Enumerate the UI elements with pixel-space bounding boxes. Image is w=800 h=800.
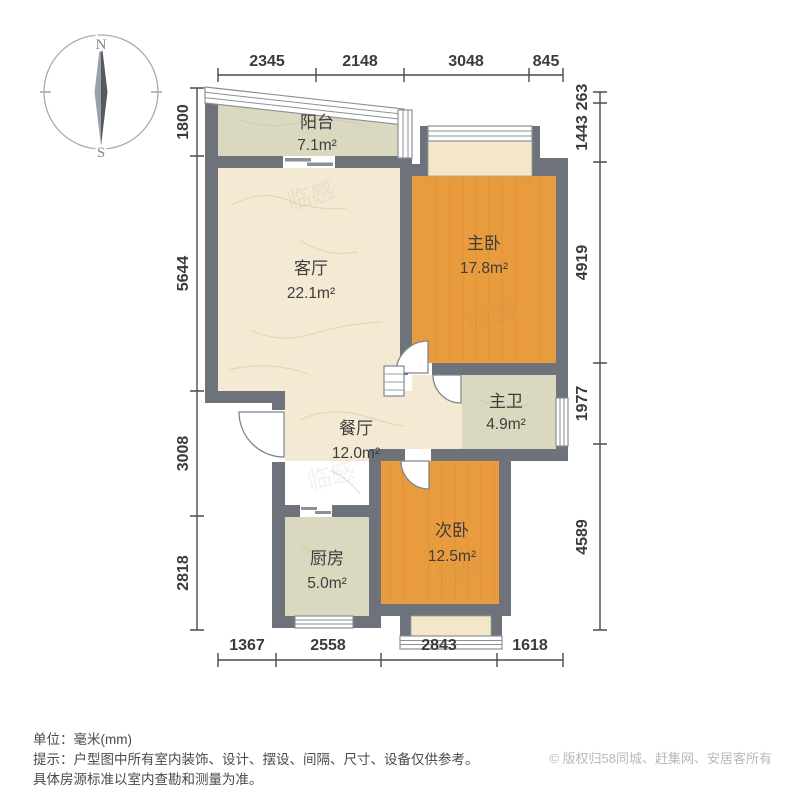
master-bay-sill <box>428 141 532 176</box>
balcony-area: 7.1m² <box>297 137 337 154</box>
dim-right-3: 4919 <box>574 245 591 281</box>
wall-second-bedroom-bottom <box>381 604 511 616</box>
kitchen-slider-leaf1 <box>301 507 317 510</box>
dim-bottom-4: 1618 <box>512 637 548 654</box>
dim-bottom-3: 2843 <box>421 637 457 654</box>
kitchen-slider-leaf2 <box>315 511 331 514</box>
floorplan-canvas: N S <box>0 0 800 715</box>
dim-right-2: 1443 <box>574 115 591 151</box>
dim-bottom-1: 1367 <box>229 637 265 654</box>
dim-right-1: 263 <box>574 84 591 111</box>
wall-bay-stub-left <box>400 616 411 638</box>
dim-right-5: 4589 <box>574 519 591 555</box>
dim-left-1: 1800 <box>175 104 192 140</box>
floorplan-page: N S <box>0 0 800 800</box>
second-bedroom-door-gap <box>405 449 431 461</box>
dim-top-3: 3048 <box>448 53 484 70</box>
dim-bottom-2: 2558 <box>310 637 346 654</box>
tip-note-line1: 提示：户型图中所有室内装饰、设计、摆设、间隔、尺寸、设备仅供参考。 <box>33 750 479 770</box>
master-bath-floor <box>462 375 556 451</box>
wall-master-bay-stub-left <box>420 126 428 176</box>
wall-bath-second-bedroom <box>369 449 568 461</box>
dim-right-4: 1977 <box>574 386 591 422</box>
wall-bay-stub-right <box>491 616 502 638</box>
compass-south-label: S <box>97 145 105 161</box>
wall-living-master <box>400 156 412 375</box>
tip-note-line2: 具体房源标准以室内查勘和测量为准。 <box>33 770 479 790</box>
dining-room-name: 餐厅 <box>339 419 373 438</box>
dim-top-1: 2345 <box>249 53 285 70</box>
master-bath-name: 主卫 <box>489 392 523 411</box>
unit-note: 单位：毫米(mm) <box>33 730 479 750</box>
balcony-slider-gap <box>283 156 335 168</box>
kitchen-area: 5.0m² <box>307 575 347 592</box>
footer-notes: 单位：毫米(mm) 提示：户型图中所有室内装饰、设计、摆设、间隔、尺寸、设备仅供… <box>33 730 479 790</box>
wall-left-outer <box>205 90 218 403</box>
dim-top-2: 2148 <box>342 53 378 70</box>
master-bay-window <box>428 126 532 141</box>
dim-left-2: 5644 <box>175 256 192 292</box>
master-bedroom-area: 17.8m² <box>460 260 508 277</box>
watermark-text: 临感 <box>305 457 358 496</box>
living-room-name: 客厅 <box>294 259 328 278</box>
master-bedroom-name: 主卧 <box>467 234 501 253</box>
balcony-name: 阳台 <box>300 113 334 132</box>
compass-needle-right <box>101 38 108 146</box>
balcony-side-window <box>398 110 412 158</box>
copyright-note: © 版权归58同城、赶集网、安居客所有 <box>549 748 772 767</box>
kitchen-window <box>295 616 353 628</box>
duct-symbol <box>384 366 404 396</box>
balcony-slider-leaf1 <box>285 158 311 162</box>
entry-door <box>239 412 284 457</box>
compass-icon: N S <box>40 35 162 161</box>
balcony-slider-leaf2 <box>307 163 333 167</box>
living-room-area: 22.1m² <box>287 285 335 302</box>
master-bath-area: 4.9m² <box>486 416 526 433</box>
second-bay-sill <box>411 616 491 636</box>
dim-left-3: 3008 <box>175 436 192 472</box>
compass-north-label: N <box>96 37 107 53</box>
dim-left-4: 2818 <box>175 555 192 591</box>
dim-top-4: 845 <box>533 53 560 70</box>
wall-kitchen-second-bedroom <box>369 449 381 616</box>
bath-window <box>556 398 568 446</box>
wall-second-bedroom-right <box>499 449 511 616</box>
compass-needle-left <box>95 38 102 146</box>
kitchen-name: 厨房 <box>310 549 344 568</box>
second-bedroom-name: 次卧 <box>435 521 469 540</box>
wall-master-bay-stub-right <box>532 126 540 176</box>
